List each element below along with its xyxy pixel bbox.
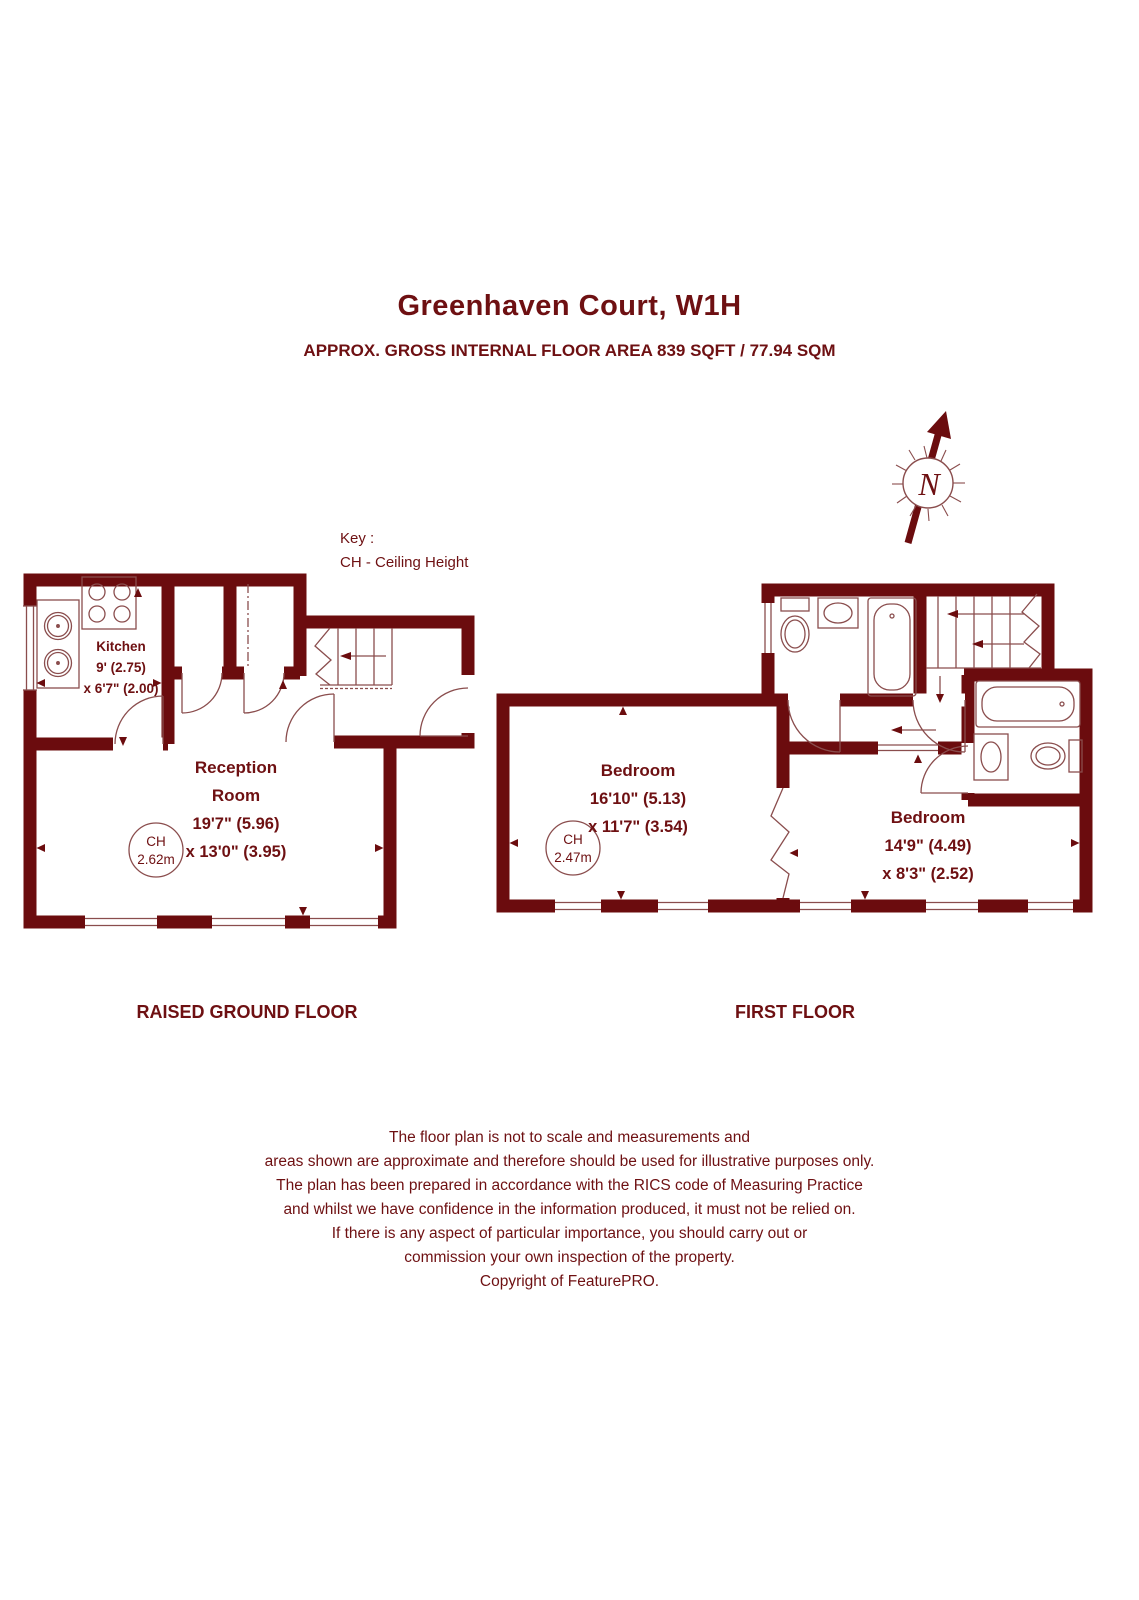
ch-label: CH	[146, 834, 166, 849]
ground-floor-title: RAISED GROUND FLOOR	[47, 1002, 447, 1023]
disclaimer-line: and whilst we have confidence in the inf…	[0, 1198, 1139, 1222]
bathtub-icon-bathroom2	[976, 681, 1080, 727]
bedroom2-label: Bedroom 14'9" (4.49) x 8'3" (2.52)	[882, 808, 974, 883]
disclaimer-line: Copyright of FeaturePRO.	[0, 1270, 1139, 1294]
first-floor-wall-openings	[555, 603, 1073, 913]
kitchen-dim2: x 6'7" (2.00)	[84, 681, 159, 696]
ceiling-height-badge-ground: CH 2.62m	[129, 823, 183, 877]
bedroom1-dim1: 16'10" (5.13)	[590, 790, 686, 808]
sink-icon-bathroom1	[818, 598, 858, 628]
bedroom1-dim2: x 11'7" (3.54)	[588, 818, 688, 836]
ground-floor-walls	[30, 580, 468, 922]
disclaimer-line: commission your own inspection of the pr…	[0, 1246, 1139, 1270]
page-title: Greenhaven Court, W1H	[0, 290, 1139, 323]
toilet-icon-bathroom1	[781, 598, 809, 652]
floorplan-page: Greenhaven Court, W1H APPROX. GROSS INTE…	[0, 0, 1139, 1600]
first-floor-windows	[555, 603, 1073, 910]
reception-room-label: Reception Room 19'7" (5.96) x 13'0" (3.9…	[186, 758, 287, 861]
north-label: N	[917, 466, 941, 502]
sink-icon-bathroom2	[974, 734, 1008, 780]
staircase-icon	[315, 628, 392, 689]
toilet-icon-bathroom2	[1031, 740, 1082, 772]
north-arrow-icon: N	[872, 398, 992, 553]
disclaimer-line: If there is any aspect of particular imp…	[0, 1222, 1139, 1246]
ch-label: CH	[563, 832, 583, 847]
disclaimer-text: The floor plan is not to scale and measu…	[0, 1126, 1139, 1294]
disclaimer-line: The floor plan is not to scale and measu…	[0, 1126, 1139, 1150]
kitchen-name: Kitchen	[96, 639, 146, 654]
floor-area-subtitle: APPROX. GROSS INTERNAL FLOOR AREA 839 SQ…	[0, 341, 1139, 361]
disclaimer-line: areas shown are approximate and therefor…	[0, 1150, 1139, 1174]
kitchen-sink-icon	[37, 600, 79, 688]
bedroom1-label: Bedroom 16'10" (5.13) x 11'7" (3.54)	[588, 761, 688, 836]
folding-door-icon	[771, 788, 789, 898]
key-title: Key :	[340, 527, 468, 551]
kitchen-dim1: 9' (2.75)	[96, 660, 146, 675]
kitchen-label: Kitchen 9' (2.75) x 6'7" (2.00)	[84, 639, 159, 696]
ground-floor-survey-markers	[37, 588, 384, 916]
first-floor-title: FIRST FLOOR	[645, 1002, 945, 1023]
reception-name-line1: Reception	[195, 758, 277, 777]
ground-floor-plan: CH 2.62m Kitchen 9' (2.75) x 6'7" (2.00)…	[18, 550, 478, 935]
bedroom1-name: Bedroom	[601, 761, 676, 780]
ch-value: 2.47m	[554, 850, 592, 865]
reception-name-line2: Room	[212, 786, 260, 805]
first-floor-plan: CH 2.47m Bedroom 16'10" (5.13) x 11'7" (…	[488, 548, 1108, 940]
bedroom2-dim1: 14'9" (4.49)	[885, 837, 972, 855]
reception-dim2: x 13'0" (3.95)	[186, 843, 287, 861]
disclaimer-line: The plan has been prepared in accordance…	[0, 1174, 1139, 1198]
bedroom2-name: Bedroom	[891, 808, 966, 827]
bathtub-icon-bathroom1	[868, 598, 916, 696]
reception-dim1: 19'7" (5.96)	[193, 815, 280, 833]
ch-value: 2.62m	[137, 852, 175, 867]
bedroom2-dim2: x 8'3" (2.52)	[882, 865, 974, 883]
